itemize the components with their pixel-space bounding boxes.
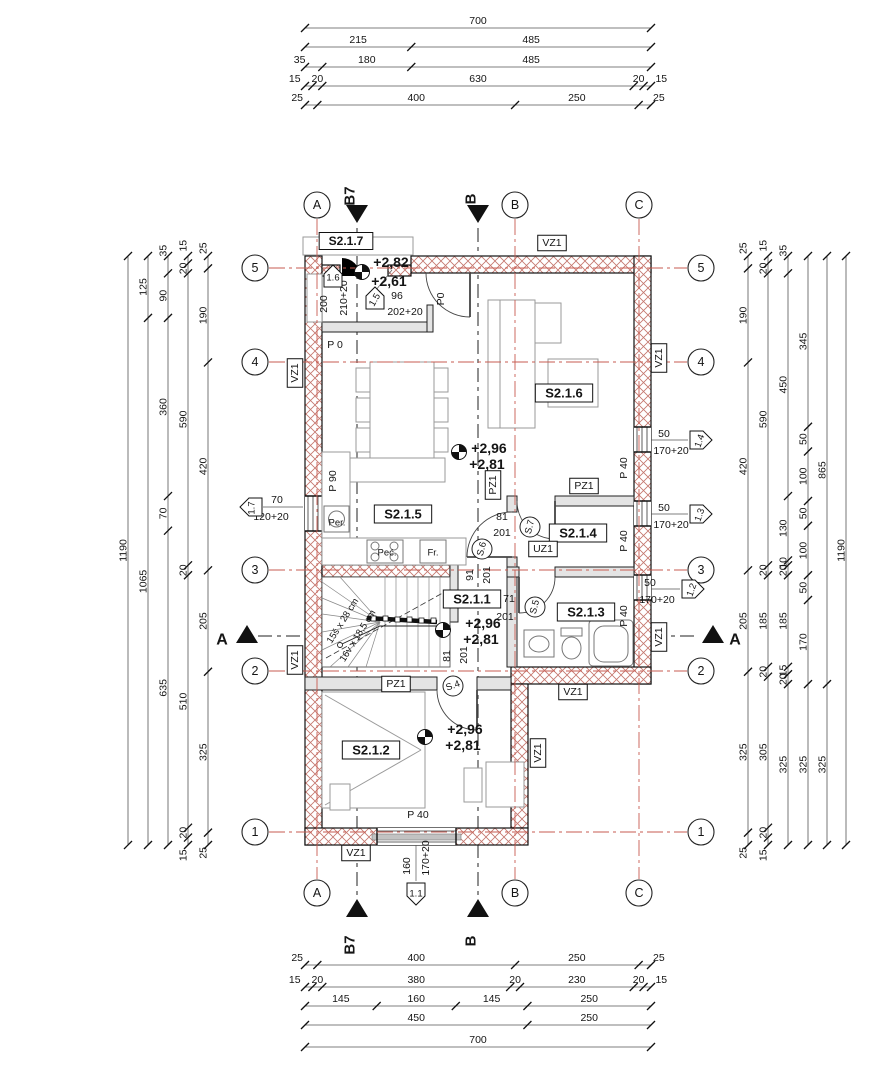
- appliance-washer: Per.: [329, 518, 346, 529]
- room-label-s2-1-1: S2.1.1: [443, 590, 500, 608]
- dimension-chain: [164, 252, 172, 849]
- wall-tag-vz1-text: VZ1: [532, 743, 544, 762]
- wall-tag-vz1-text: VZ1: [289, 363, 301, 382]
- wall-tag-vz1: VZ1: [342, 845, 371, 861]
- dimension-value-text: 25: [291, 952, 303, 964]
- chair: [356, 368, 371, 392]
- dimension-value-text: 35: [294, 54, 306, 66]
- wall-tag-vz1-text: VZ1: [653, 627, 665, 646]
- dimension-value-text: 25: [738, 242, 750, 254]
- grid-bubble-label: 5: [252, 261, 259, 275]
- grid-bubble-label: 5: [698, 261, 705, 275]
- dimension-value-text: 450: [778, 376, 790, 394]
- door-width: 81: [441, 650, 453, 662]
- chair: [356, 398, 371, 422]
- dimension-value: 700: [469, 1034, 487, 1046]
- parapet-tag-text: P 40: [407, 809, 429, 821]
- dimension-value: 50: [798, 433, 810, 445]
- wall-tag-vz1: VZ1: [559, 684, 588, 700]
- dimension-value: 100: [798, 542, 810, 560]
- window-dim-text: 170+20: [420, 840, 432, 875]
- wall-bedroom-north-left: [305, 677, 437, 690]
- parapet-tag: P 40: [618, 530, 630, 552]
- level-value-text: +2,81: [445, 737, 481, 753]
- level-value-text: +2,81: [463, 631, 499, 647]
- dimension-value: 20: [178, 262, 190, 274]
- dimension-value-text: 160: [407, 993, 425, 1005]
- window-dim: 170+20: [420, 840, 432, 875]
- grid-bubble-label: A: [313, 886, 322, 900]
- dimension-value-text: 865: [817, 461, 829, 479]
- dimension-value-text: 325: [198, 743, 210, 761]
- door-width-text: 91: [464, 569, 476, 581]
- dimension-value-text: 510: [178, 693, 190, 711]
- dimension-value: 160: [407, 993, 425, 1005]
- dimension-value: 250: [568, 952, 586, 964]
- dimension-value-text: 125: [138, 278, 150, 296]
- section-mark-a-text: A: [216, 632, 228, 649]
- wall-entry-kitchen: [322, 322, 433, 332]
- level-value-text: +2,96: [471, 440, 507, 456]
- dimension-value-text: 20: [758, 564, 770, 576]
- dimension-value: 90: [158, 290, 170, 302]
- dimension-value-text: 20: [509, 974, 521, 986]
- door-width: 81: [496, 511, 508, 523]
- grid-bubble: 2: [688, 658, 714, 684]
- dimension-value-text: 25: [198, 847, 210, 859]
- appliance-stove-text: Peć.: [377, 548, 396, 559]
- dimension-value: 180: [358, 54, 376, 66]
- grid-bubble-label: 3: [252, 563, 259, 577]
- dimension-value: 20: [178, 827, 190, 839]
- window-dim-text: 50: [658, 502, 670, 514]
- dimension-chain: [301, 101, 655, 109]
- dimension-value: 20: [178, 564, 190, 576]
- door-height: 201: [493, 527, 511, 539]
- dimension-value-text: 420: [198, 457, 210, 475]
- opening-dim: 200: [318, 295, 330, 313]
- grid-bubble-label: 2: [252, 664, 259, 678]
- dimension-value: 25: [291, 92, 303, 104]
- level-symbol-quadrant: [425, 730, 433, 738]
- dining-table: [370, 362, 434, 458]
- wall-tag-vz1-text: VZ1: [542, 237, 561, 249]
- level-value-text: +2,96: [465, 615, 501, 631]
- section-mark-a: A: [216, 632, 228, 649]
- room-label-s2-1-3: S2.1.3: [557, 603, 614, 621]
- wall-row2-right: [511, 667, 651, 684]
- wall-tag-vz1-text: VZ1: [346, 847, 365, 859]
- door-width-text: 81: [441, 650, 453, 662]
- dimension-value: 25: [198, 847, 210, 859]
- parapet-tag: P 40: [407, 809, 429, 821]
- window-dim-text: 70: [271, 494, 283, 506]
- dimension-value-text: 360: [158, 398, 170, 416]
- dimension-value: 15: [758, 849, 770, 861]
- dimension-value-text: 15: [758, 849, 770, 861]
- wall-s214-north: [555, 496, 634, 506]
- appliance-washer-text: Per.: [329, 518, 346, 529]
- level-value: +2,96: [447, 721, 483, 737]
- wall-tag-vz1: VZ1: [287, 646, 303, 675]
- window-right-2: [634, 501, 651, 526]
- grid-bubble: 3: [242, 557, 268, 583]
- grid-bubble: B: [502, 192, 528, 218]
- section-mark-a: A: [729, 632, 741, 649]
- opening-dim-text: 200: [318, 295, 330, 313]
- section-triangle: [467, 205, 489, 223]
- dimension-value-text: 20: [178, 564, 190, 576]
- dimension-value: 15: [289, 974, 301, 986]
- dimension-value: 420: [198, 457, 210, 475]
- dimension-value-text: 20: [178, 827, 190, 839]
- dimension-value-text: 15: [289, 974, 301, 986]
- section-mark-b-text: B: [463, 193, 480, 204]
- dimension-value-text: 590: [758, 410, 770, 428]
- dimension-value: 1190: [118, 539, 130, 562]
- wall-tag-vz1-text: VZ1: [563, 686, 582, 698]
- door-width: 91: [464, 569, 476, 581]
- section-mark-b-text: B: [463, 935, 480, 946]
- level-value: +2,96: [465, 615, 501, 631]
- door-width-text: 96: [391, 290, 403, 302]
- dimension-value: 205: [738, 612, 750, 630]
- dimension-value: 100: [798, 467, 810, 485]
- wall-bath-north-left: [507, 567, 519, 577]
- room-label-s2-1-5-text: S2.1.5: [384, 507, 422, 522]
- door-height-text: 201: [458, 646, 470, 664]
- floor-plan-svg: 7002154853518048515206302015254002502525…: [0, 0, 890, 1080]
- room-label-s2-1-7: S2.1.7: [319, 233, 373, 250]
- wall-tag-uz1: UZ1: [529, 541, 558, 557]
- dimension-value: 230: [568, 974, 586, 986]
- dimension-value: 400: [407, 952, 425, 964]
- room-label-s2-1-1-text: S2.1.1: [453, 592, 491, 607]
- grid-bubble: C: [626, 192, 652, 218]
- dimension-value-text: 635: [158, 679, 170, 697]
- dimension-chain: [184, 252, 192, 849]
- level-value-text: +2,82: [373, 254, 409, 270]
- dimension-value-text: 700: [469, 15, 487, 27]
- dimension-value: 190: [738, 306, 750, 324]
- dimension-value-text: 20: [178, 262, 190, 274]
- dimension-value: 485: [522, 34, 540, 46]
- door-width: 96: [391, 290, 403, 302]
- dimension-value-text: 230: [568, 974, 586, 986]
- dimension-value: 865: [817, 461, 829, 479]
- section-mark-b7: B7: [342, 186, 359, 205]
- dimension-value: 15: [178, 849, 190, 861]
- dimension-value: 20: [758, 262, 770, 274]
- dimension-value-text: 20: [633, 974, 645, 986]
- grid-bubble: A: [304, 192, 330, 218]
- door-height: 201: [458, 646, 470, 664]
- dimension-value-text: 325: [798, 756, 810, 774]
- dimension-value: 450: [778, 376, 790, 394]
- room-label-s2-1-6: S2.1.6: [535, 384, 592, 402]
- dimension-chain: [301, 961, 655, 969]
- window-dim: 70: [271, 494, 283, 506]
- dimension-value-text: 15: [655, 974, 667, 986]
- dimension-value: 20: [758, 564, 770, 576]
- room-label-s2-1-4: S2.1.4: [549, 524, 606, 542]
- dimension-value: 250: [580, 993, 598, 1005]
- dimension-value: 205: [198, 612, 210, 630]
- dimension-value: 20: [633, 73, 645, 85]
- parapet-tag-text: P0: [435, 292, 447, 305]
- grid-bubble-label: 2: [698, 664, 705, 678]
- toilet-tank: [561, 628, 582, 636]
- dimension-value-text: 700: [469, 1034, 487, 1046]
- desk: [486, 762, 524, 807]
- dimension-value: 20: [758, 666, 770, 678]
- dimension-value: 35: [778, 245, 790, 257]
- level-symbol-quadrant: [362, 265, 370, 273]
- grid-bubble-label: A: [313, 198, 322, 212]
- window-left: [305, 496, 322, 531]
- dimension-value: 35: [294, 54, 306, 66]
- wall-tag-vz1-text: VZ1: [653, 348, 665, 367]
- dimension-value-text: 215: [349, 34, 367, 46]
- dimension-value-text: 100: [798, 467, 810, 485]
- dimension-value: 20: [778, 564, 790, 576]
- wall-entry-living-stub: [427, 305, 433, 332]
- room-label-s2-1-6-text: S2.1.6: [545, 386, 583, 401]
- dimension-value-text: 250: [580, 993, 598, 1005]
- room-label-s2-1-3-text: S2.1.3: [567, 605, 605, 620]
- window-dim: 160: [401, 857, 413, 875]
- dimension-value: 590: [758, 410, 770, 428]
- section-mark-b: B: [463, 935, 480, 946]
- door-width: 71: [503, 593, 515, 605]
- window-bottom: [372, 828, 461, 845]
- section-mark-b7: B7: [342, 935, 359, 954]
- grid-bubble: 2: [242, 658, 268, 684]
- dimension-value: 325: [738, 743, 750, 761]
- grid-bubble: B: [502, 880, 528, 906]
- room-label-s2-1-2-text: S2.1.2: [352, 743, 390, 758]
- dimension-value-text: 325: [778, 756, 790, 774]
- dimension-value-text: 20: [312, 974, 324, 986]
- parapet-tag: P 40: [618, 605, 630, 627]
- dimension-value-text: 20: [633, 73, 645, 85]
- dimension-value-text: 20: [778, 673, 790, 685]
- wall-tag-vz1: VZ1: [530, 739, 546, 768]
- dimension-value: 15: [178, 240, 190, 252]
- dimension-value: 130: [778, 519, 790, 537]
- dimension-value-text: 325: [817, 756, 829, 774]
- wall-tag-pz1-text: PZ1: [574, 480, 593, 492]
- level-symbol: [355, 265, 370, 280]
- dimension-value: 20: [312, 73, 324, 85]
- dimension-value: 360: [158, 398, 170, 416]
- level-value: +2,96: [471, 440, 507, 456]
- floor-plan-page: 7002154853518048515206302015254002502525…: [0, 0, 890, 1080]
- section-triangle: [236, 625, 258, 643]
- dimension-value: 25: [198, 242, 210, 254]
- parapet-tag-text: P 40: [618, 530, 630, 552]
- grid-bubble: 5: [242, 255, 268, 281]
- dimension-value: 145: [332, 993, 350, 1005]
- grid-bubble-label: B: [511, 198, 519, 212]
- dimension-value-text: 185: [758, 612, 770, 630]
- dimension-value-text: 345: [798, 332, 810, 350]
- parapet-tag: P 90: [327, 470, 339, 492]
- dimension-value: 50: [798, 507, 810, 519]
- wall-bath-north-right: [555, 567, 634, 577]
- window-dim-text: 170+20: [653, 445, 688, 457]
- dimension-value: 590: [178, 410, 190, 428]
- wall-tag-vz1-text: VZ1: [289, 650, 301, 669]
- section-mark-b7-text: B7: [342, 186, 359, 205]
- bathtub-inner: [594, 626, 628, 662]
- dimension-value: 185: [778, 612, 790, 630]
- dimension-value: 20: [312, 974, 324, 986]
- pentagon-label-text: 1.1: [409, 889, 422, 900]
- level-value-text: +2,96: [447, 721, 483, 737]
- dimension-value-text: 15: [758, 240, 770, 252]
- dimension-value-text: 35: [778, 245, 790, 257]
- dimension-value: 380: [407, 974, 425, 986]
- dimension-value: 630: [469, 73, 487, 85]
- dimension-value: 325: [798, 756, 810, 774]
- dimension-value-text: 25: [291, 92, 303, 104]
- dimension-value: 20: [633, 974, 645, 986]
- dimension-value-text: 590: [178, 410, 190, 428]
- dimension-value: 170: [798, 633, 810, 651]
- dimension-value: 20: [778, 673, 790, 685]
- level-symbol-quadrant: [355, 272, 363, 280]
- level-value: +2,81: [469, 456, 505, 472]
- door-height-text: 201: [493, 527, 511, 539]
- dimension-value-text: 450: [407, 1012, 425, 1024]
- room-label-s2-1-4-text: S2.1.4: [559, 526, 597, 541]
- window-dim-text: 50: [644, 577, 656, 589]
- dimension-value-text: 180: [358, 54, 376, 66]
- room-label-s2-1-2: S2.1.2: [342, 741, 399, 759]
- dimension-value: 325: [778, 756, 790, 774]
- door-width-text: 81: [496, 511, 508, 523]
- window-dim: 170+20: [639, 594, 674, 606]
- dimension-value: 325: [198, 743, 210, 761]
- door-width-text: 71: [503, 593, 515, 605]
- grid-bubble-label: 4: [252, 355, 259, 369]
- pentagon-label: 1.6: [326, 273, 339, 284]
- grid-bubble: C: [626, 880, 652, 906]
- dimension-value: 215: [349, 34, 367, 46]
- wall-tag-pz1: PZ1: [570, 478, 599, 494]
- level-symbol: [452, 445, 467, 460]
- wall-tag-pz1-text: PZ1: [386, 678, 405, 690]
- dimension-value-text: 305: [758, 743, 770, 761]
- door-height: 202+20: [387, 306, 422, 318]
- sofa-chaise: [535, 303, 561, 343]
- sideboard: [345, 458, 445, 482]
- grid-bubble-label: C: [634, 198, 643, 212]
- wall-tag-pz1: PZ1: [382, 676, 411, 692]
- door-height-text: 202+20: [387, 306, 422, 318]
- dimension-value-text: 25: [653, 952, 665, 964]
- dimension-value: 400: [407, 92, 425, 104]
- grid-bubble: 1: [242, 819, 268, 845]
- chair: [433, 398, 448, 422]
- section-mark-a-text: A: [729, 632, 741, 649]
- pillow: [330, 784, 350, 810]
- dimension-value: 635: [158, 679, 170, 697]
- section-triangle: [346, 899, 368, 917]
- parapet-tag-text: P 0: [327, 339, 343, 351]
- grid-bubble: 5: [688, 255, 714, 281]
- section-triangle: [346, 205, 368, 223]
- dimension-value-text: 400: [407, 92, 425, 104]
- grid-bubble: 4: [688, 349, 714, 375]
- grid-bubble-label: 4: [698, 355, 705, 369]
- dimension-value-text: 485: [522, 54, 540, 66]
- window-dim: 50: [644, 577, 656, 589]
- grid-bubble: A: [304, 880, 330, 906]
- parapet-tag-text: P 90: [327, 470, 339, 492]
- grid-bubble: 4: [242, 349, 268, 375]
- dimension-value: 25: [738, 242, 750, 254]
- dimension-value-text: 145: [332, 993, 350, 1005]
- dimension-chain: [144, 252, 152, 849]
- dimension-value-text: 25: [738, 847, 750, 859]
- dimension-value: 450: [407, 1012, 425, 1024]
- dimension-value-text: 485: [522, 34, 540, 46]
- level-value: +2,82: [373, 254, 409, 270]
- wall-tag-pz1: PZ1: [485, 471, 501, 500]
- dimension-value: 1190: [836, 539, 848, 562]
- dimension-value-text: 190: [738, 306, 750, 324]
- section-triangle: [467, 899, 489, 917]
- toilet-bowl: [562, 637, 581, 659]
- dimension-value-text: 1190: [118, 539, 130, 562]
- dimension-value-text: 15: [655, 73, 667, 85]
- grid-bubble: 1: [688, 819, 714, 845]
- dimension-value-text: 15: [178, 240, 190, 252]
- dimension-value: 250: [580, 1012, 598, 1024]
- appliance-fridge: Fr.: [427, 548, 438, 559]
- section-triangle: [702, 625, 724, 643]
- dimension-value: 25: [738, 847, 750, 859]
- parapet-tag-text: P 40: [618, 605, 630, 627]
- window-dim: 170+20: [653, 519, 688, 531]
- desk-chair: [464, 768, 482, 802]
- wall-tag-uz1-text: UZ1: [533, 543, 553, 555]
- appliance-stove: Peć.: [377, 548, 396, 559]
- parapet-tag-text: P 40: [618, 457, 630, 479]
- dimension-value-text: 250: [580, 1012, 598, 1024]
- living-room-furniture: [488, 300, 598, 428]
- wall-right: [634, 256, 651, 684]
- dimension-value: 25: [653, 92, 665, 104]
- chair: [433, 428, 448, 452]
- room-label-s2-1-5: S2.1.5: [374, 505, 431, 523]
- dimension-value: 250: [568, 92, 586, 104]
- wall-top: [411, 256, 651, 273]
- dimension-value: 50: [798, 582, 810, 594]
- level-value: +2,81: [445, 737, 481, 753]
- window-dim: 50: [658, 502, 670, 514]
- section-mark-b: B: [463, 193, 480, 204]
- dimension-value-text: 25: [653, 92, 665, 104]
- dimension-value-text: 170: [798, 633, 810, 651]
- dimension-value-text: 100: [798, 542, 810, 560]
- dimension-value: 420: [738, 457, 750, 475]
- dimension-value-text: 205: [198, 612, 210, 630]
- wall-tag-vz1: VZ1: [538, 235, 567, 251]
- dimension-value: 1065: [138, 570, 150, 594]
